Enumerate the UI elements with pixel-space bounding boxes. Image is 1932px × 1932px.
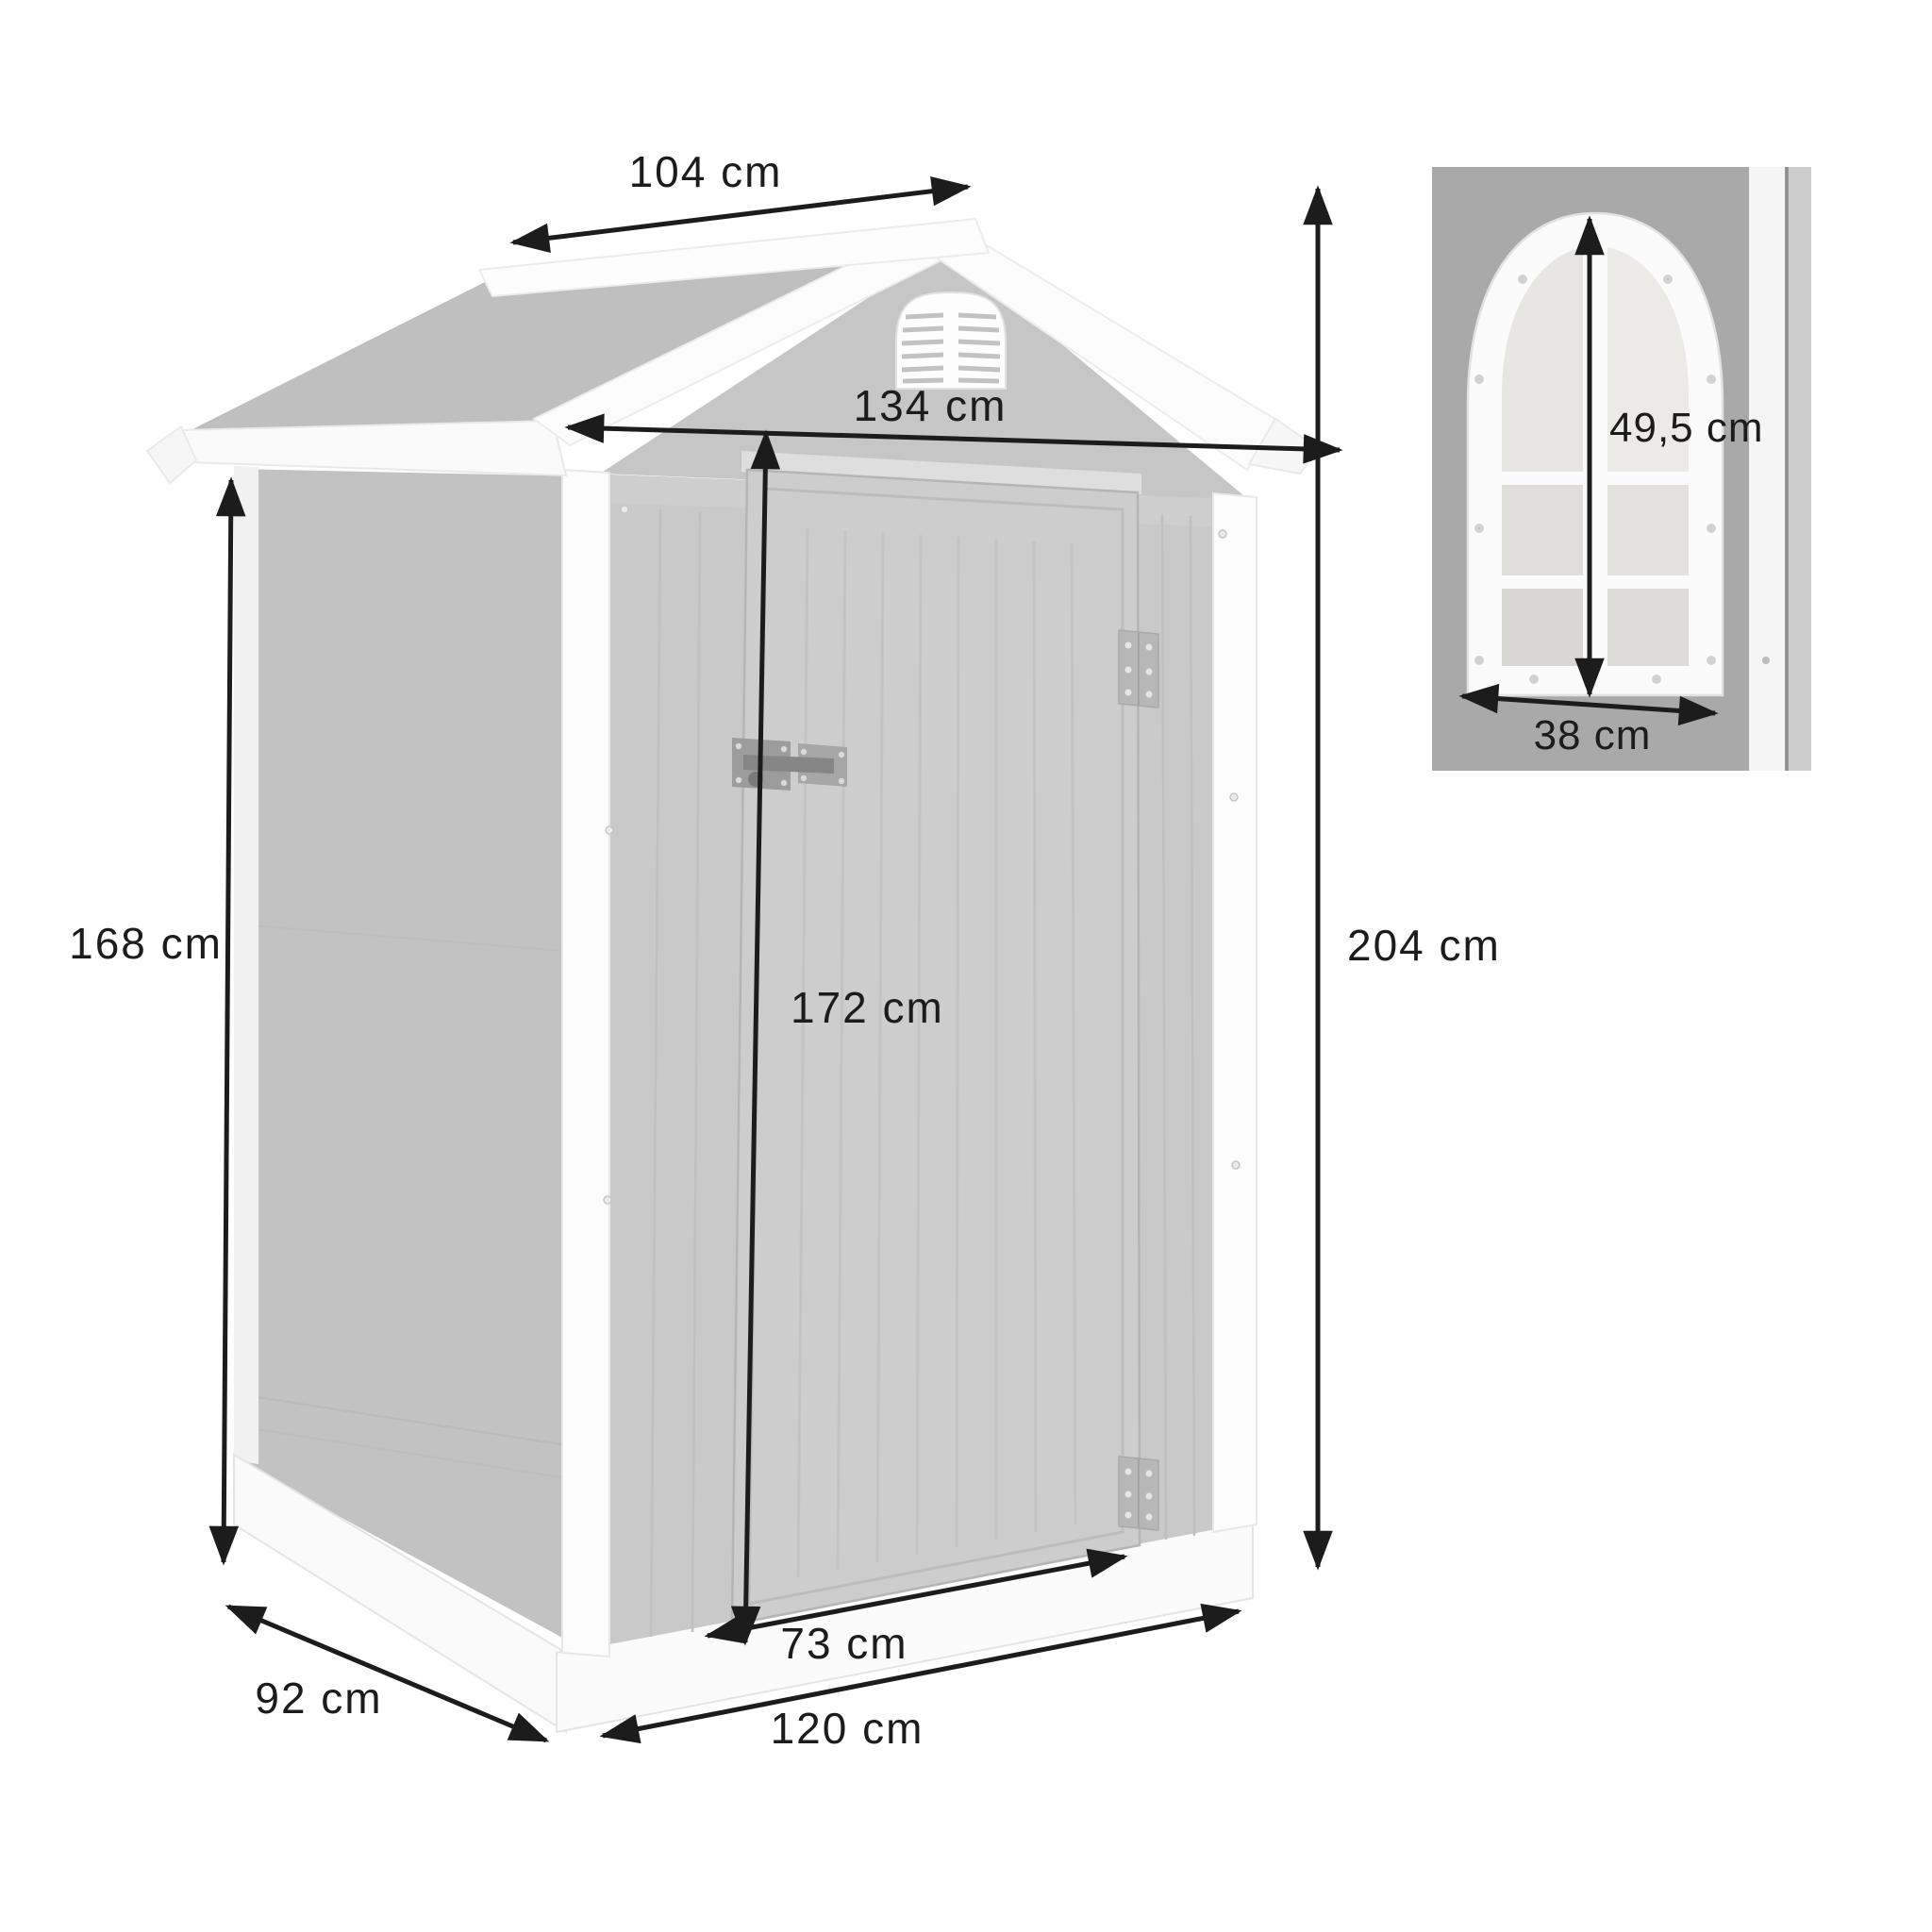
door-hinge-top <box>1119 630 1158 708</box>
shed-door <box>732 451 1158 1624</box>
shed-left-wall <box>234 466 587 1651</box>
back-corner-trim <box>234 466 258 1464</box>
door-hinge-bottom <box>1119 1457 1158 1530</box>
dim-wall-height-label: 168 cm <box>69 919 223 968</box>
gable-vent <box>896 292 1006 389</box>
shed-dimension-figure: 49,5 cm 38 cm 104 cm 134 cm 168 cm 204 c… <box>0 0 1932 1932</box>
dim-roof-depth-label: 104 cm <box>629 147 783 196</box>
dim-wall-height: 168 cm <box>69 480 231 1562</box>
dim-base-width-label: 120 cm <box>771 1704 924 1753</box>
window-detail-inset: 49,5 cm 38 cm <box>1432 167 1811 771</box>
dim-window-width-label: 38 cm <box>1534 712 1652 758</box>
dim-door-width-label: 73 cm <box>780 1619 908 1668</box>
inset-window <box>1468 213 1723 695</box>
dim-base-depth-label: 92 cm <box>255 1674 382 1723</box>
dim-total-height-label: 204 cm <box>1347 921 1501 970</box>
dim-window-height-label: 49,5 cm <box>1609 405 1764 451</box>
inset-corner-trim <box>1749 167 1785 771</box>
shed-dimension-diagram: 49,5 cm 38 cm 104 cm 134 cm 168 cm 204 c… <box>0 0 1932 1932</box>
dim-roof-width-label: 134 cm <box>854 381 1008 430</box>
dim-door-height-label: 172 cm <box>791 983 944 1032</box>
